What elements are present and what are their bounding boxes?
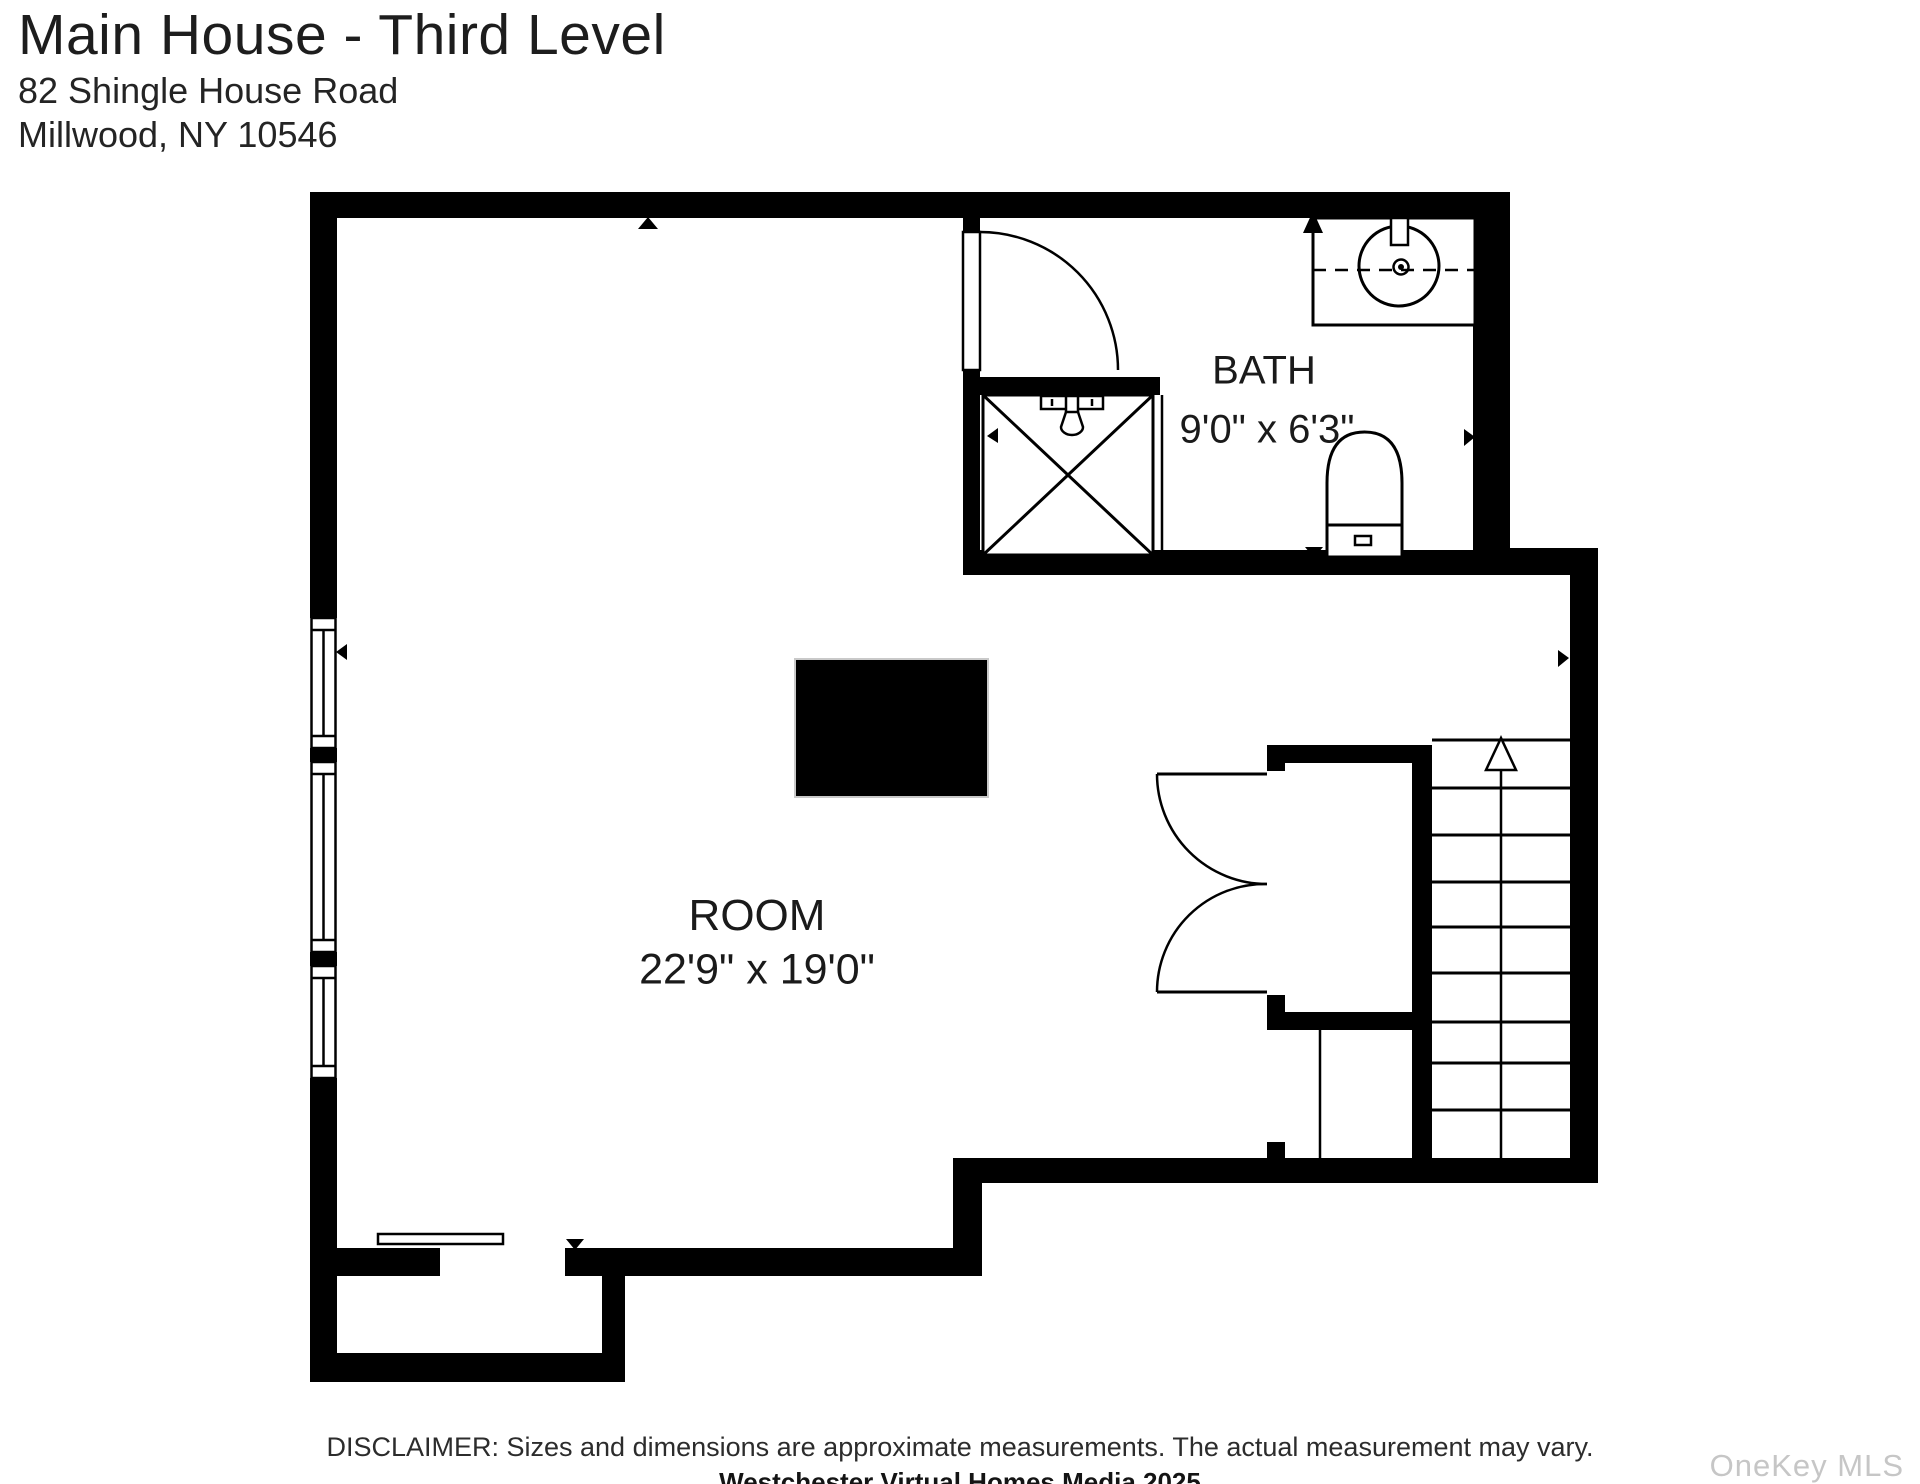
window-bottom-sill xyxy=(378,1234,503,1244)
toilet-flush-button xyxy=(1355,536,1371,545)
wall-left-sep2 xyxy=(310,952,337,966)
wall-bottom-left-a xyxy=(310,1248,440,1276)
marker-right-wall-icon xyxy=(1558,650,1569,667)
address-line-2: Millwood, NY 10546 xyxy=(18,116,666,154)
bath-door-leaf xyxy=(963,232,980,370)
wall-shower-top xyxy=(963,377,1160,395)
bath-dimensions: 9'0" x 6'3" xyxy=(1180,408,1355,453)
wall-lowerroom-left-stub xyxy=(1267,1142,1285,1158)
wall-right xyxy=(1570,548,1598,1183)
wall-closet-bottom xyxy=(1267,1012,1432,1030)
closet-door-arc-top xyxy=(1157,774,1267,884)
chimney-block xyxy=(795,659,988,797)
wall-bay-bottom xyxy=(310,1353,625,1382)
wall-bottom-right xyxy=(953,1158,1598,1183)
room-dimensions: 22'9" x 19'0" xyxy=(639,946,875,995)
wall-bottom-left-b xyxy=(565,1248,982,1276)
wall-closet-left-stub-bottom xyxy=(1267,993,1285,1030)
stairs xyxy=(1432,738,1570,1158)
marker-left-wall-icon xyxy=(336,644,347,660)
closet-door-opening xyxy=(1265,771,1287,995)
wall-divider-lower xyxy=(963,370,980,575)
stair-up-arrow-icon xyxy=(1486,738,1516,770)
floorplan-drawing xyxy=(0,0,1920,1484)
footer: DISCLAIMER: Sizes and dimensions are app… xyxy=(0,1432,1920,1484)
room-label: ROOM xyxy=(689,891,826,941)
wall-left-sep1 xyxy=(310,748,337,762)
bath-label: BATH xyxy=(1212,349,1316,394)
title-block: Main House - Third Level 82 Shingle Hous… xyxy=(18,6,666,153)
marker-top-wall-icon xyxy=(638,217,658,229)
floorplan-page: Main House - Third Level 82 Shingle Hous… xyxy=(0,0,1920,1484)
wall-bay-right xyxy=(602,1267,625,1382)
wall-connector xyxy=(1510,548,1598,575)
sink-faucet-icon xyxy=(1391,218,1408,245)
window-1 xyxy=(312,618,336,748)
closet-door-arc-bottom xyxy=(1157,884,1267,992)
bath-door-swing-arc xyxy=(980,232,1118,370)
windows xyxy=(312,618,504,1244)
page-title: Main House - Third Level xyxy=(18,6,666,66)
address-line-1: 82 Shingle House Road xyxy=(18,72,666,110)
wall-divider-stub xyxy=(963,218,980,232)
disclaimer-text: DISCLAIMER: Sizes and dimensions are app… xyxy=(0,1432,1920,1463)
wall-closet-left-stub-top xyxy=(1267,745,1285,773)
wall-bath-right xyxy=(1473,192,1510,575)
closet-double-door xyxy=(1157,771,1287,995)
bath-door xyxy=(963,232,1118,370)
wall-left-lower xyxy=(310,1078,337,1382)
shower xyxy=(983,395,1162,556)
window-2 xyxy=(312,762,336,952)
sink-vanity xyxy=(1303,211,1475,325)
mls-watermark: OneKey MLS xyxy=(1710,1448,1904,1484)
wall-closet-top xyxy=(1267,745,1432,763)
wall-top xyxy=(310,192,1510,218)
credit-text: Westchester Virtual Homes Media 2025 xyxy=(0,1467,1920,1484)
window-3 xyxy=(312,966,336,1078)
wall-left-upper xyxy=(310,192,337,618)
wall-closet-right xyxy=(1412,745,1432,1158)
